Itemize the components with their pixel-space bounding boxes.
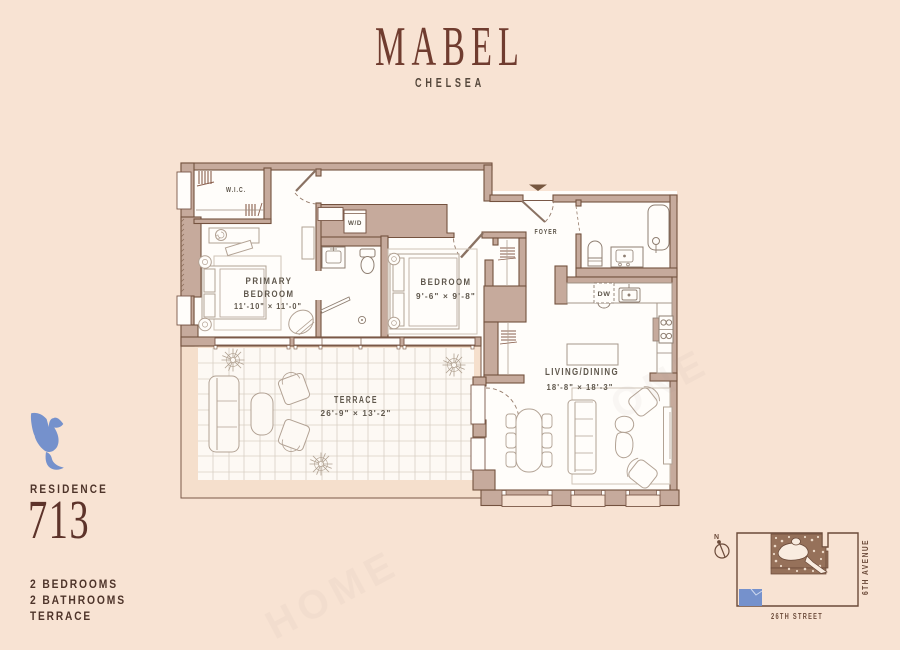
svg-text:TERRACE: TERRACE <box>30 609 92 623</box>
svg-text:TERRACE: TERRACE <box>334 394 378 406</box>
svg-text:26'-9" × 13'-2": 26'-9" × 13'-2" <box>321 408 392 418</box>
svg-text:DW: DW <box>598 291 611 298</box>
svg-text:CHELSEA: CHELSEA <box>415 76 485 90</box>
svg-text:FOYER: FOYER <box>535 227 558 236</box>
svg-text:2 BATHROOMS: 2 BATHROOMS <box>30 593 126 607</box>
svg-text:26TH STREET: 26TH STREET <box>771 612 823 621</box>
svg-text:2 BEDROOMS: 2 BEDROOMS <box>30 577 118 591</box>
svg-text:11'-10" × 11'-0": 11'-10" × 11'-0" <box>234 301 302 311</box>
svg-text:9'-6" × 9'-8": 9'-6" × 9'-8" <box>416 291 476 301</box>
svg-text:6TH AVENUE: 6TH AVENUE <box>861 539 870 595</box>
svg-text:W.I.C.: W.I.C. <box>226 187 246 194</box>
svg-text:BEDROOM: BEDROOM <box>244 289 295 300</box>
svg-text:LIVING/DINING: LIVING/DINING <box>545 366 619 378</box>
svg-text:N: N <box>714 534 719 541</box>
svg-text:PRIMARY: PRIMARY <box>246 276 293 287</box>
svg-text:W/D: W/D <box>348 220 362 227</box>
svg-text:BEDROOM: BEDROOM <box>421 277 472 288</box>
svg-text:MABEL: MABEL <box>375 16 525 78</box>
svg-text:713: 713 <box>28 489 90 550</box>
